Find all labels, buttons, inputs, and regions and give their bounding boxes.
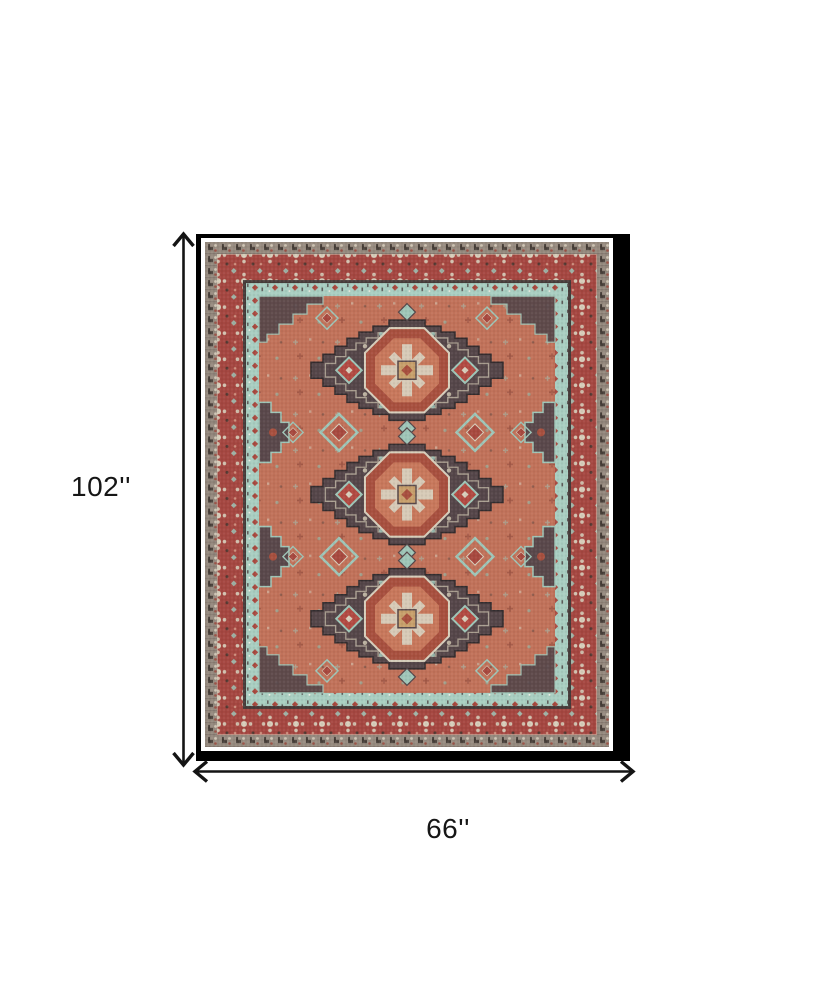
- rug-illustration: [205, 242, 609, 747]
- product-dimension-figure: 102'' 66'': [0, 0, 825, 1000]
- rug-frame: [196, 234, 630, 761]
- height-dimension-label: 102'': [36, 471, 166, 503]
- width-dimension-arrow: [189, 757, 639, 787]
- rug-photo: [201, 238, 613, 751]
- width-dimension-label: 66'': [383, 813, 513, 845]
- height-dimension-arrow: [169, 229, 199, 771]
